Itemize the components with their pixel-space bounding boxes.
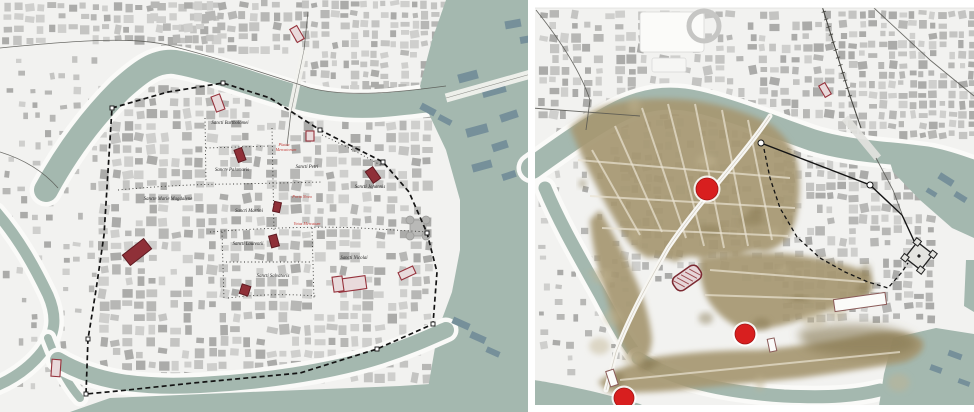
aerial-mottle — [860, 263, 872, 281]
parish-label: Sancti Laurentii — [233, 242, 265, 247]
map-figure: Sancti BartholomeiSancte PalamarisSancti… — [0, 0, 974, 412]
parish-label: Sancte Palamaris — [215, 168, 249, 173]
wall-gate-marker — [84, 392, 88, 396]
excavation-marker — [735, 324, 755, 344]
aerial-mottle — [604, 309, 621, 326]
right-top-margin — [535, 0, 974, 8]
parish-label: Sancti Petri — [296, 165, 319, 170]
aerial-mottle — [855, 285, 872, 293]
parish-label: Sancti Nicolai — [340, 256, 368, 261]
wall-gate-marker — [110, 106, 114, 110]
parish-label: Sancte Marie Magdalene — [144, 197, 193, 202]
church-outline — [51, 359, 61, 377]
right-bottom-margin — [535, 405, 974, 412]
wall-gate-marker — [381, 160, 385, 164]
wall-gate-marker — [758, 140, 764, 146]
aerial-mottle — [628, 98, 641, 114]
wall-gate-marker — [425, 231, 429, 235]
castle-building — [406, 216, 430, 240]
parish-label: Sancti Bartholomei — [211, 121, 249, 126]
aerial-mottle — [588, 270, 612, 276]
parish-label: Sancti Martini — [235, 209, 264, 214]
wall-gate-marker — [375, 347, 379, 351]
gate-label: Mercatorum — [275, 147, 297, 152]
wall-gate-marker — [318, 128, 322, 132]
aerial-mottle — [622, 352, 645, 364]
aerial-mottle — [643, 359, 661, 368]
aerial-mottle — [888, 374, 910, 392]
excavation-marker — [696, 178, 718, 200]
gate-label: Porta Nova — [291, 194, 311, 199]
right-map-panel — [531, 0, 974, 412]
aerial-mottle — [579, 179, 587, 188]
wall-gate-marker — [431, 322, 435, 326]
wall-gate-marker — [221, 81, 225, 85]
wall-gate-marker — [867, 182, 873, 188]
wall-gate-marker — [86, 337, 90, 341]
parish-label: Sancti Salvatoris — [257, 274, 290, 279]
church-outline — [332, 276, 344, 292]
map-divider — [528, 0, 535, 412]
aerial-mottle — [755, 376, 765, 391]
gate-label: Vetus Mercatum — [294, 221, 321, 226]
left-map-panel: Sancti BartholomeiSancte PalamarisSancti… — [0, 0, 533, 412]
aerial-mottle — [779, 266, 789, 273]
city-map-canvas: Sancti BartholomeiSancte PalamarisSancti… — [0, 0, 974, 412]
aerial-mottle — [699, 312, 714, 324]
aerial-mottle — [802, 311, 828, 328]
aerial-mottle — [589, 338, 610, 355]
church-outline — [306, 131, 314, 141]
church-building — [273, 201, 282, 212]
parish-label: Sancti Johannis — [355, 185, 386, 190]
